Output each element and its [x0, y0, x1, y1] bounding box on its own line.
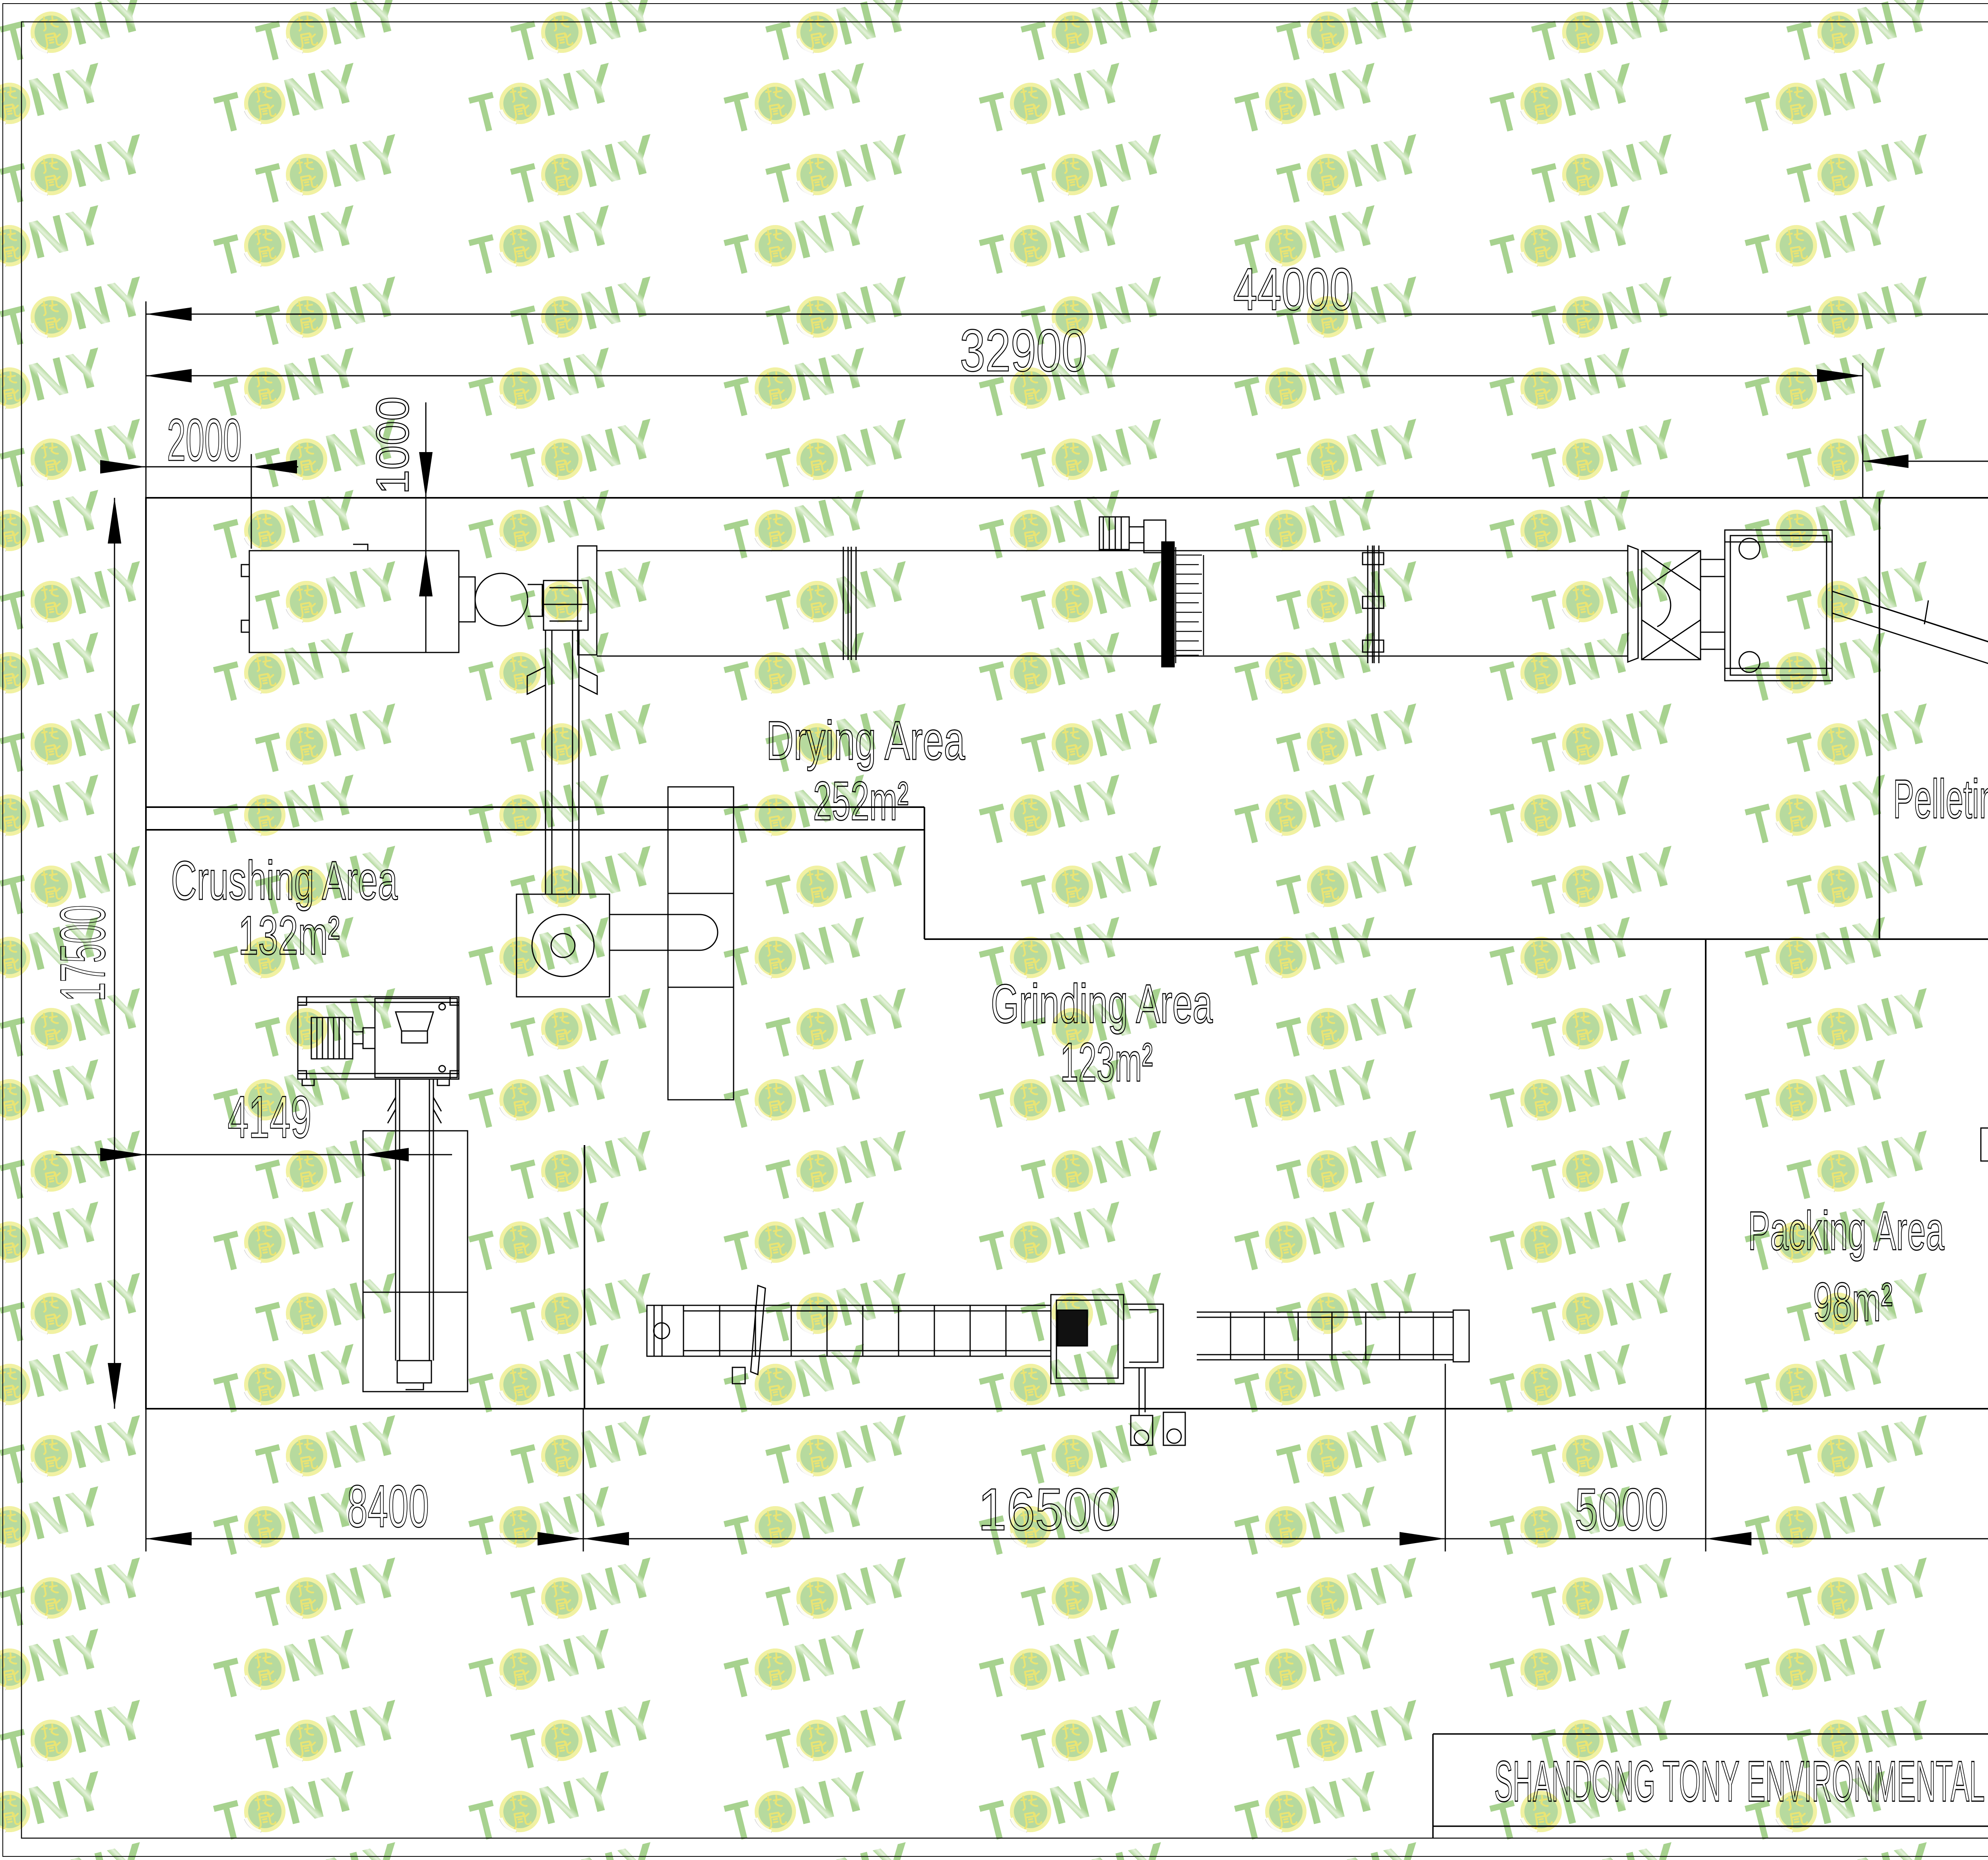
svg-text:Drying Area: Drying Area — [766, 710, 965, 771]
svg-text:98m²: 98m² — [1813, 1272, 1893, 1333]
svg-text:4149: 4149 — [228, 1083, 312, 1150]
svg-text:SHANDONG TONY ENVIRONMENTAL PR: SHANDONG TONY ENVIRONMENTAL PROTECTION S… — [1494, 1749, 1988, 1813]
svg-text:252m²: 252m² — [813, 771, 909, 832]
svg-text:132m²: 132m² — [239, 905, 340, 966]
svg-text:1000: 1000 — [367, 396, 418, 494]
svg-text:17500: 17500 — [47, 905, 118, 1002]
svg-text:8400: 8400 — [347, 1473, 429, 1540]
svg-text:Pelleting&Cooling Area: Pelleting&Cooling Area — [1893, 769, 1988, 830]
svg-text:5000: 5000 — [1575, 1476, 1668, 1543]
svg-text:Grinding Area: Grinding Area — [991, 973, 1213, 1035]
svg-text:2000: 2000 — [167, 406, 242, 473]
svg-text:32900: 32900 — [960, 317, 1087, 384]
svg-text:44000: 44000 — [1233, 256, 1354, 322]
svg-text:16500: 16500 — [978, 1476, 1120, 1543]
svg-text:123m²: 123m² — [1060, 1032, 1153, 1093]
svg-text:Crushing Area: Crushing Area — [171, 850, 398, 911]
svg-text:Packing Area: Packing Area — [1748, 1200, 1944, 1262]
